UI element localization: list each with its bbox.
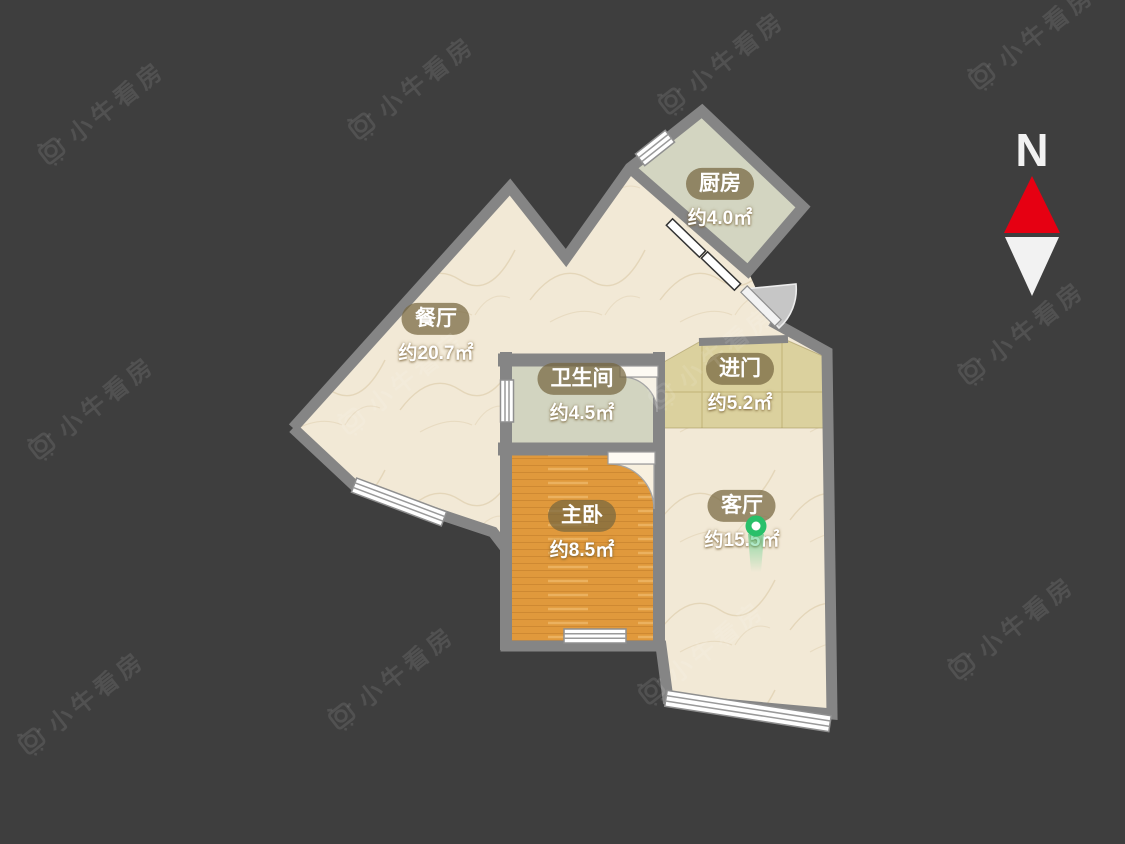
room-fills [293, 111, 831, 712]
bathroom-door-leaf [620, 366, 658, 377]
floor-plan-svg [0, 0, 1125, 844]
bedroom-wood-texture [500, 449, 663, 646]
bedroom-door-leaf [608, 452, 655, 464]
wall-entry-top [699, 339, 788, 342]
bedroom-window [564, 629, 626, 643]
room-entry [662, 339, 825, 428]
floorplan-stage: 厨房 约4.0㎡ 餐厅 约20.7㎡ 卫生间 约4.5㎡ 进门 约5.2㎡ 主卧… [0, 0, 1125, 844]
bathroom-window [501, 380, 514, 422]
